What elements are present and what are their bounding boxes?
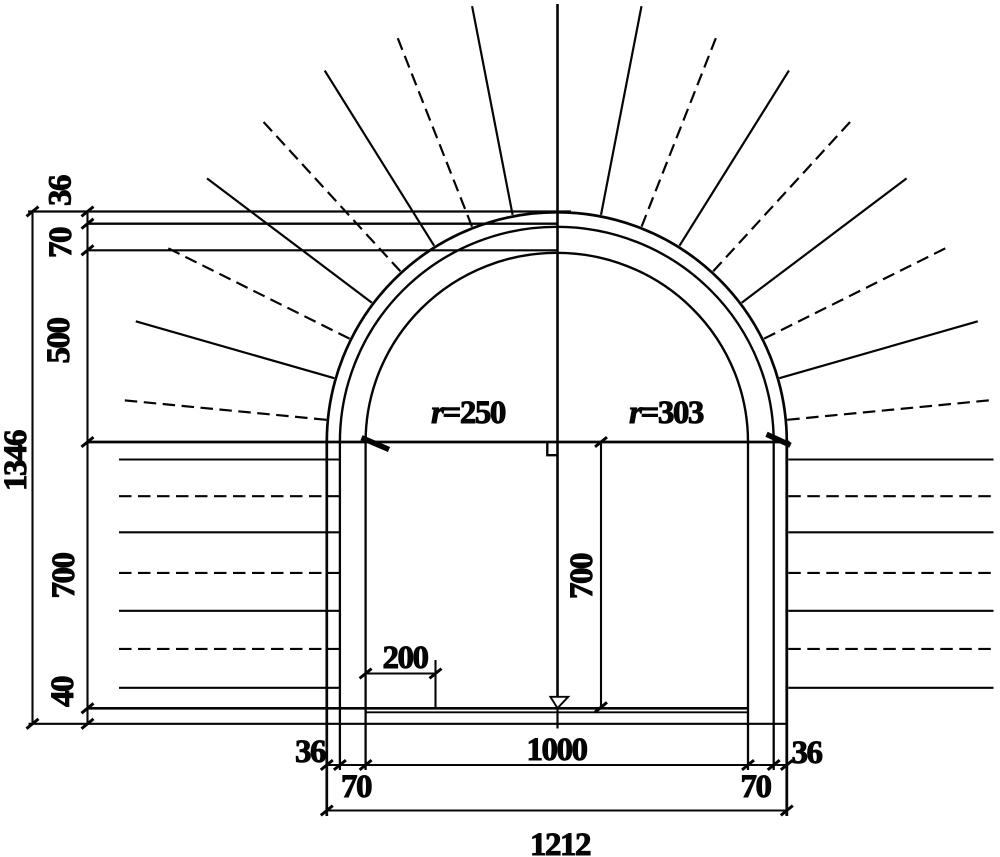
svg-text:36: 36 [295, 734, 326, 770]
svg-text:70: 70 [341, 769, 372, 805]
svg-text:700: 700 [46, 553, 82, 599]
svg-text:70: 70 [43, 227, 79, 258]
svg-text:r=250: r=250 [431, 395, 506, 431]
svg-text:40: 40 [45, 676, 81, 707]
svg-text:36: 36 [43, 175, 79, 206]
svg-text:1212: 1212 [530, 827, 591, 857]
svg-text:1000: 1000 [527, 732, 588, 768]
svg-text:500: 500 [41, 318, 77, 364]
svg-text:70: 70 [741, 769, 772, 805]
svg-text:200: 200 [383, 640, 429, 676]
svg-text:36: 36 [792, 735, 823, 771]
svg-text:1346: 1346 [0, 430, 34, 491]
svg-text:700: 700 [564, 553, 600, 599]
svg-text:r=303: r=303 [629, 395, 704, 431]
